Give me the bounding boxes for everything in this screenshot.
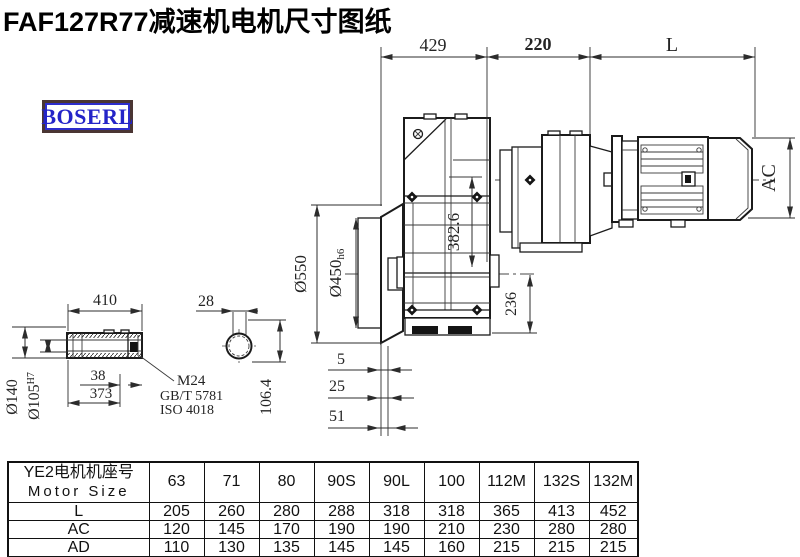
dim-25-label: 25 (329, 378, 345, 395)
table-cell: 110 (149, 538, 204, 557)
table-cell: 145 (314, 538, 369, 557)
standard-iso-callout: ISO 4018 (160, 403, 214, 418)
table-header-motor-size: YE2电机机座号 Motor Size (8, 462, 149, 502)
table-cell: 215 (589, 538, 638, 557)
dim-spigot-value: Ø450 (326, 260, 345, 298)
dim-bore-value: Ø105 (26, 384, 43, 420)
column-header: 90S (314, 462, 369, 502)
table-header-row: YE2电机机座号 Motor Size 63 71 80 90S 90L 100… (8, 462, 638, 502)
table-cell: 215 (534, 538, 589, 557)
standard-gb-callout: GB/T 5781 (160, 389, 223, 404)
dim-106-label: 106.4 (258, 379, 275, 415)
table-cell: 160 (424, 538, 479, 557)
dim-220-label: 220 (525, 34, 552, 54)
motor-size-table: YE2电机机座号 Motor Size 63 71 80 90S 90L 100… (7, 461, 639, 557)
drawing-sheet: FAF127R77减速机电机尺寸图纸 BOSERL (0, 0, 800, 557)
header-english: Motor Size (9, 482, 149, 501)
dim-38-label: 38 (91, 368, 106, 384)
table-cell: 145 (369, 538, 424, 557)
gearbox-unit (358, 114, 499, 436)
table-cell: 170 (259, 520, 314, 538)
table-cell: 215 (479, 538, 534, 557)
table-cell: 190 (369, 520, 424, 538)
table-cell: 230 (479, 520, 534, 538)
table-cell: 413 (534, 502, 589, 520)
table-cell: 318 (369, 502, 424, 520)
column-header: 90L (369, 462, 424, 502)
column-header: 132M (589, 462, 638, 502)
dim-bore-label: Ø105H7 (26, 372, 43, 420)
column-header: 80 (259, 462, 314, 502)
header-chinese: YE2电机机座号 (9, 463, 149, 482)
dim-51-label: 51 (329, 408, 345, 425)
dim-flange-od-label: Ø550 (291, 255, 310, 293)
dim-236-label: 236 (503, 292, 520, 316)
column-header: 132S (534, 462, 589, 502)
row-label: L (8, 502, 149, 520)
ac-dimension: AC (748, 138, 795, 218)
row-label: AD (8, 538, 149, 557)
row-label: AC (8, 520, 149, 538)
column-header: 71 (204, 462, 259, 502)
table-cell: 288 (314, 502, 369, 520)
dim-bore-tolerance: H7 (26, 372, 37, 384)
dim-28-label: 28 (198, 293, 214, 310)
table-cell: 135 (259, 538, 314, 557)
shaft-detail: 410 Ø140 Ø105H7 38 (4, 292, 223, 420)
dim-410-label: 410 (93, 292, 117, 309)
dim-373-label: 373 (90, 386, 113, 402)
offset-dimensions: 5 25 51 (328, 351, 418, 428)
table-row: AD 110 130 135 145 145 160 215 215 215 (8, 538, 638, 557)
table-cell: 260 (204, 502, 259, 520)
table-cell: 452 (589, 502, 638, 520)
table-cell: 205 (149, 502, 204, 520)
table-cell: 210 (424, 520, 479, 538)
dim-shaft-od-label: Ø140 (4, 379, 21, 415)
column-header: 100 (424, 462, 479, 502)
table-cell: 145 (204, 520, 259, 538)
motor (604, 136, 752, 227)
thread-callout: M24 (177, 373, 206, 389)
table-cell: 120 (149, 520, 204, 538)
dim-429-label: 429 (420, 35, 447, 55)
dim-5-label: 5 (337, 351, 345, 368)
dim-L-label: L (666, 34, 678, 56)
dimension-drawing: 429 220 L Ø550 Ø450h6 382.6 236 A (0, 0, 800, 461)
table-cell: 130 (204, 538, 259, 557)
table-cell: 280 (534, 520, 589, 538)
table-cell: 280 (259, 502, 314, 520)
dim-spigot-tolerance: h6 (335, 248, 347, 260)
dim-spigot-label: Ø450h6 (326, 248, 347, 297)
input-gear-unit (500, 131, 612, 252)
table-cell: 365 (479, 502, 534, 520)
column-header: 112M (479, 462, 534, 502)
dim-382-label: 382.6 (444, 213, 463, 251)
table-cell: 190 (314, 520, 369, 538)
table-cell: 280 (589, 520, 638, 538)
table-row: AC 120 145 170 190 190 210 230 280 280 (8, 520, 638, 538)
dim-ac-label: AC (758, 164, 780, 192)
table-row: L 205 260 280 288 318 318 365 413 452 (8, 502, 638, 520)
table-cell: 318 (424, 502, 479, 520)
column-header: 63 (149, 462, 204, 502)
